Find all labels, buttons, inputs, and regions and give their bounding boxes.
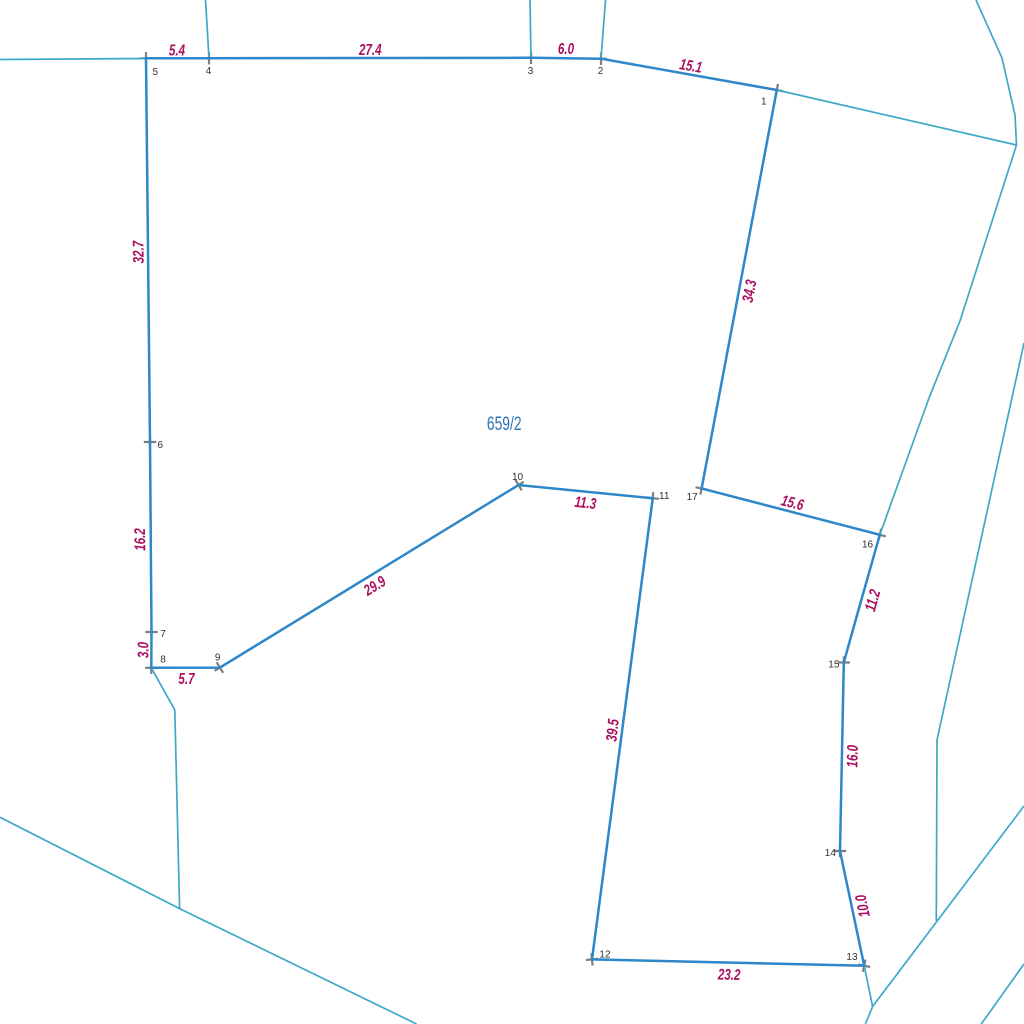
svg-text:1: 1 [761, 97, 767, 108]
svg-text:10: 10 [512, 472, 524, 483]
svg-text:15: 15 [828, 659, 840, 670]
svg-text:11.3: 11.3 [574, 493, 598, 512]
svg-text:6.0: 6.0 [558, 41, 574, 58]
svg-text:2: 2 [598, 66, 604, 77]
svg-text:39.5: 39.5 [603, 718, 622, 743]
svg-text:9: 9 [215, 653, 221, 664]
svg-text:5.7: 5.7 [178, 670, 195, 687]
svg-text:4: 4 [206, 66, 212, 77]
svg-text:3.0: 3.0 [135, 642, 152, 658]
svg-text:16: 16 [862, 539, 874, 550]
svg-text:659/2: 659/2 [487, 413, 522, 435]
svg-text:16.2: 16.2 [131, 528, 148, 551]
svg-text:5: 5 [153, 67, 159, 78]
svg-text:27.4: 27.4 [358, 41, 382, 58]
svg-text:8: 8 [160, 654, 166, 665]
svg-text:11: 11 [659, 491, 670, 502]
svg-text:13: 13 [846, 952, 858, 963]
svg-text:16.0: 16.0 [844, 744, 861, 767]
svg-text:17: 17 [687, 492, 699, 503]
svg-text:5.4: 5.4 [169, 42, 185, 59]
svg-text:14: 14 [825, 848, 837, 859]
svg-text:32.7: 32.7 [130, 240, 147, 264]
svg-text:3: 3 [528, 66, 534, 77]
svg-text:12: 12 [599, 950, 611, 961]
svg-text:23.2: 23.2 [717, 966, 741, 984]
svg-text:7: 7 [160, 629, 166, 640]
svg-text:6: 6 [158, 440, 164, 451]
